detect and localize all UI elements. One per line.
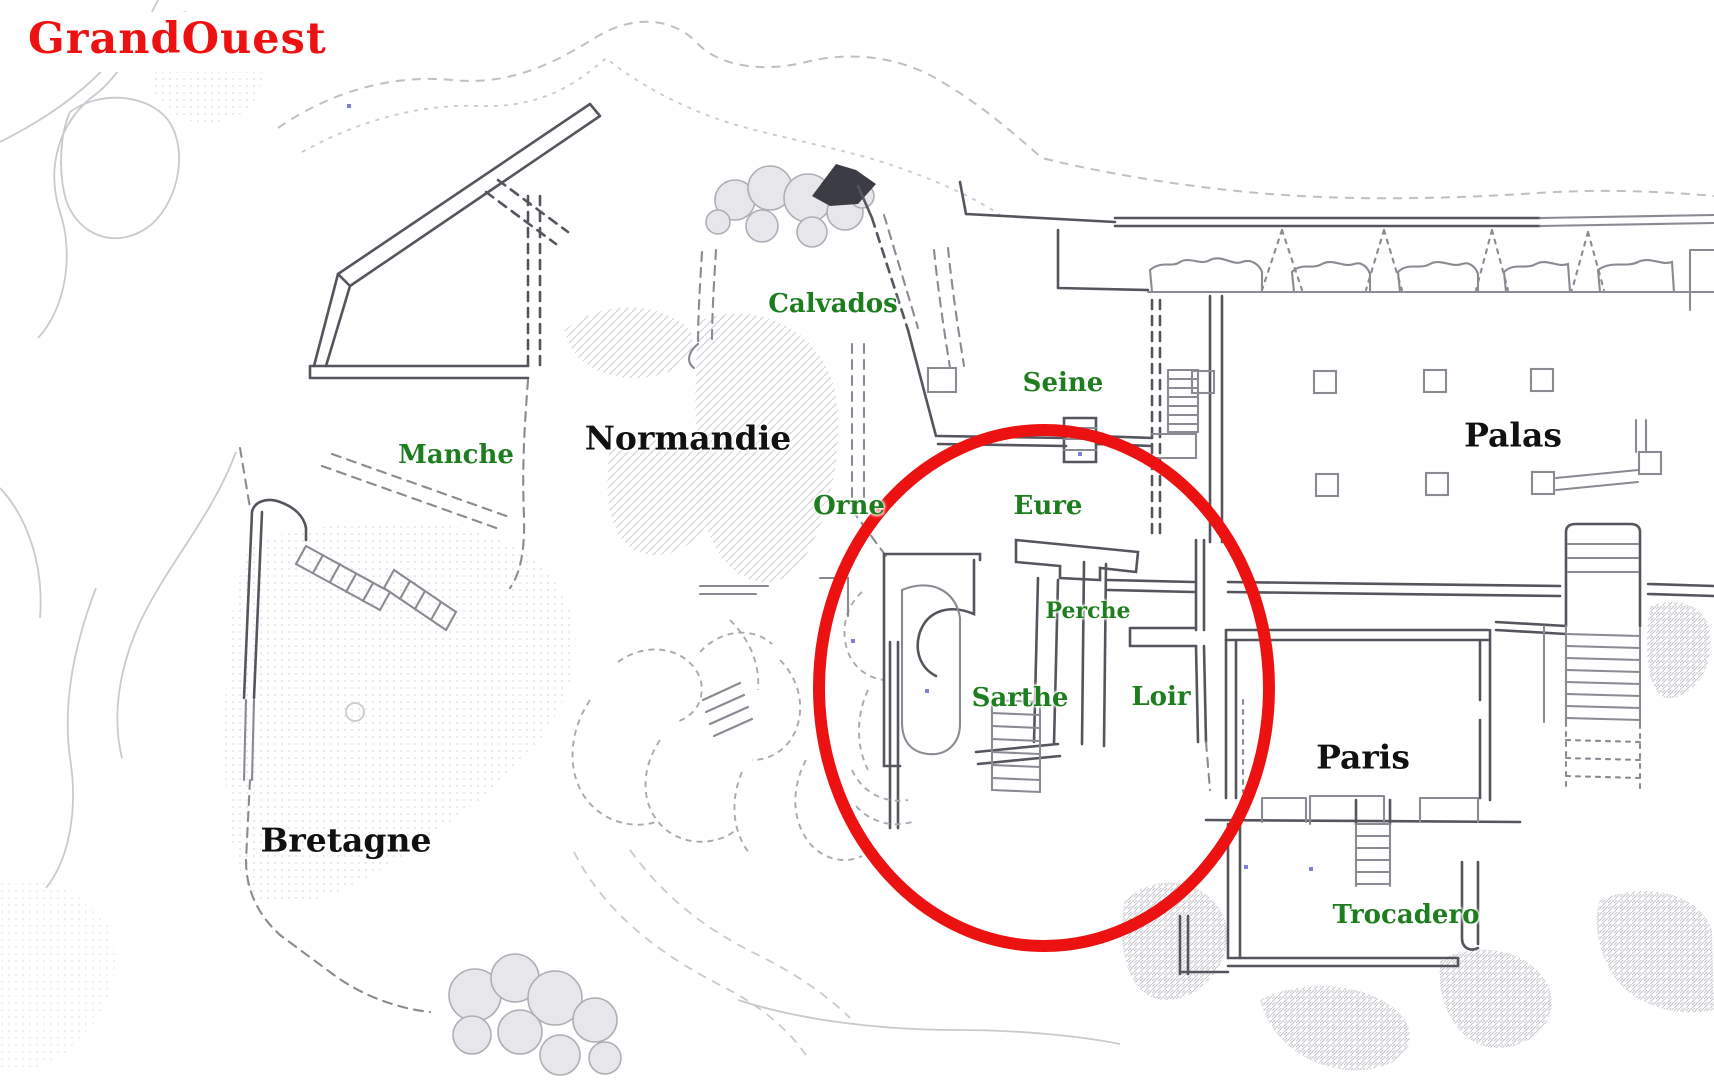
map-title-text: GrandOuest	[28, 14, 327, 64]
map-label-sarthe: Sarthe	[972, 683, 1069, 713]
map-label-seine: Seine	[1023, 368, 1104, 398]
map-label-loir: Loir	[1131, 682, 1190, 712]
map-label-bretagne: Bretagne	[261, 821, 432, 860]
map-label-manche: Manche	[398, 440, 514, 470]
map-title: GrandOuest	[20, 12, 341, 72]
map-label-paris: Paris	[1316, 738, 1410, 777]
map-label-eure: Eure	[1014, 491, 1083, 521]
map-label-normandie: Normandie	[585, 419, 791, 458]
map-label-palas: Palas	[1464, 416, 1562, 455]
map-label-orne: Orne	[813, 491, 885, 521]
map-canvas: GrandOuest NormandieBretagnePalasParisMa…	[0, 0, 1714, 1080]
label-layer: NormandieBretagnePalasParisMancheCalvado…	[0, 0, 1714, 1080]
map-label-trocadero: Trocadero	[1333, 900, 1480, 930]
map-label-perche: Perche	[1046, 598, 1131, 624]
map-label-calvados: Calvados	[768, 289, 898, 319]
